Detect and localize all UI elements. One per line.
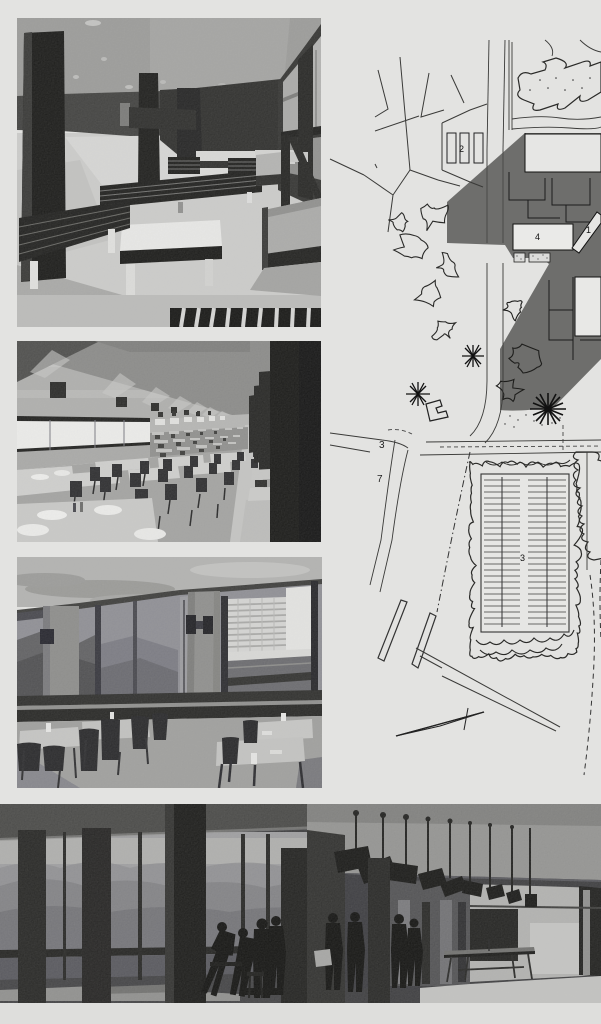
svg-text:7: 7	[377, 474, 383, 485]
svg-text:1: 1	[586, 225, 591, 235]
svg-text:3: 3	[520, 553, 525, 563]
svg-text:4: 4	[535, 232, 540, 242]
svg-text:2: 2	[459, 144, 464, 154]
svg-text:3: 3	[379, 440, 385, 451]
